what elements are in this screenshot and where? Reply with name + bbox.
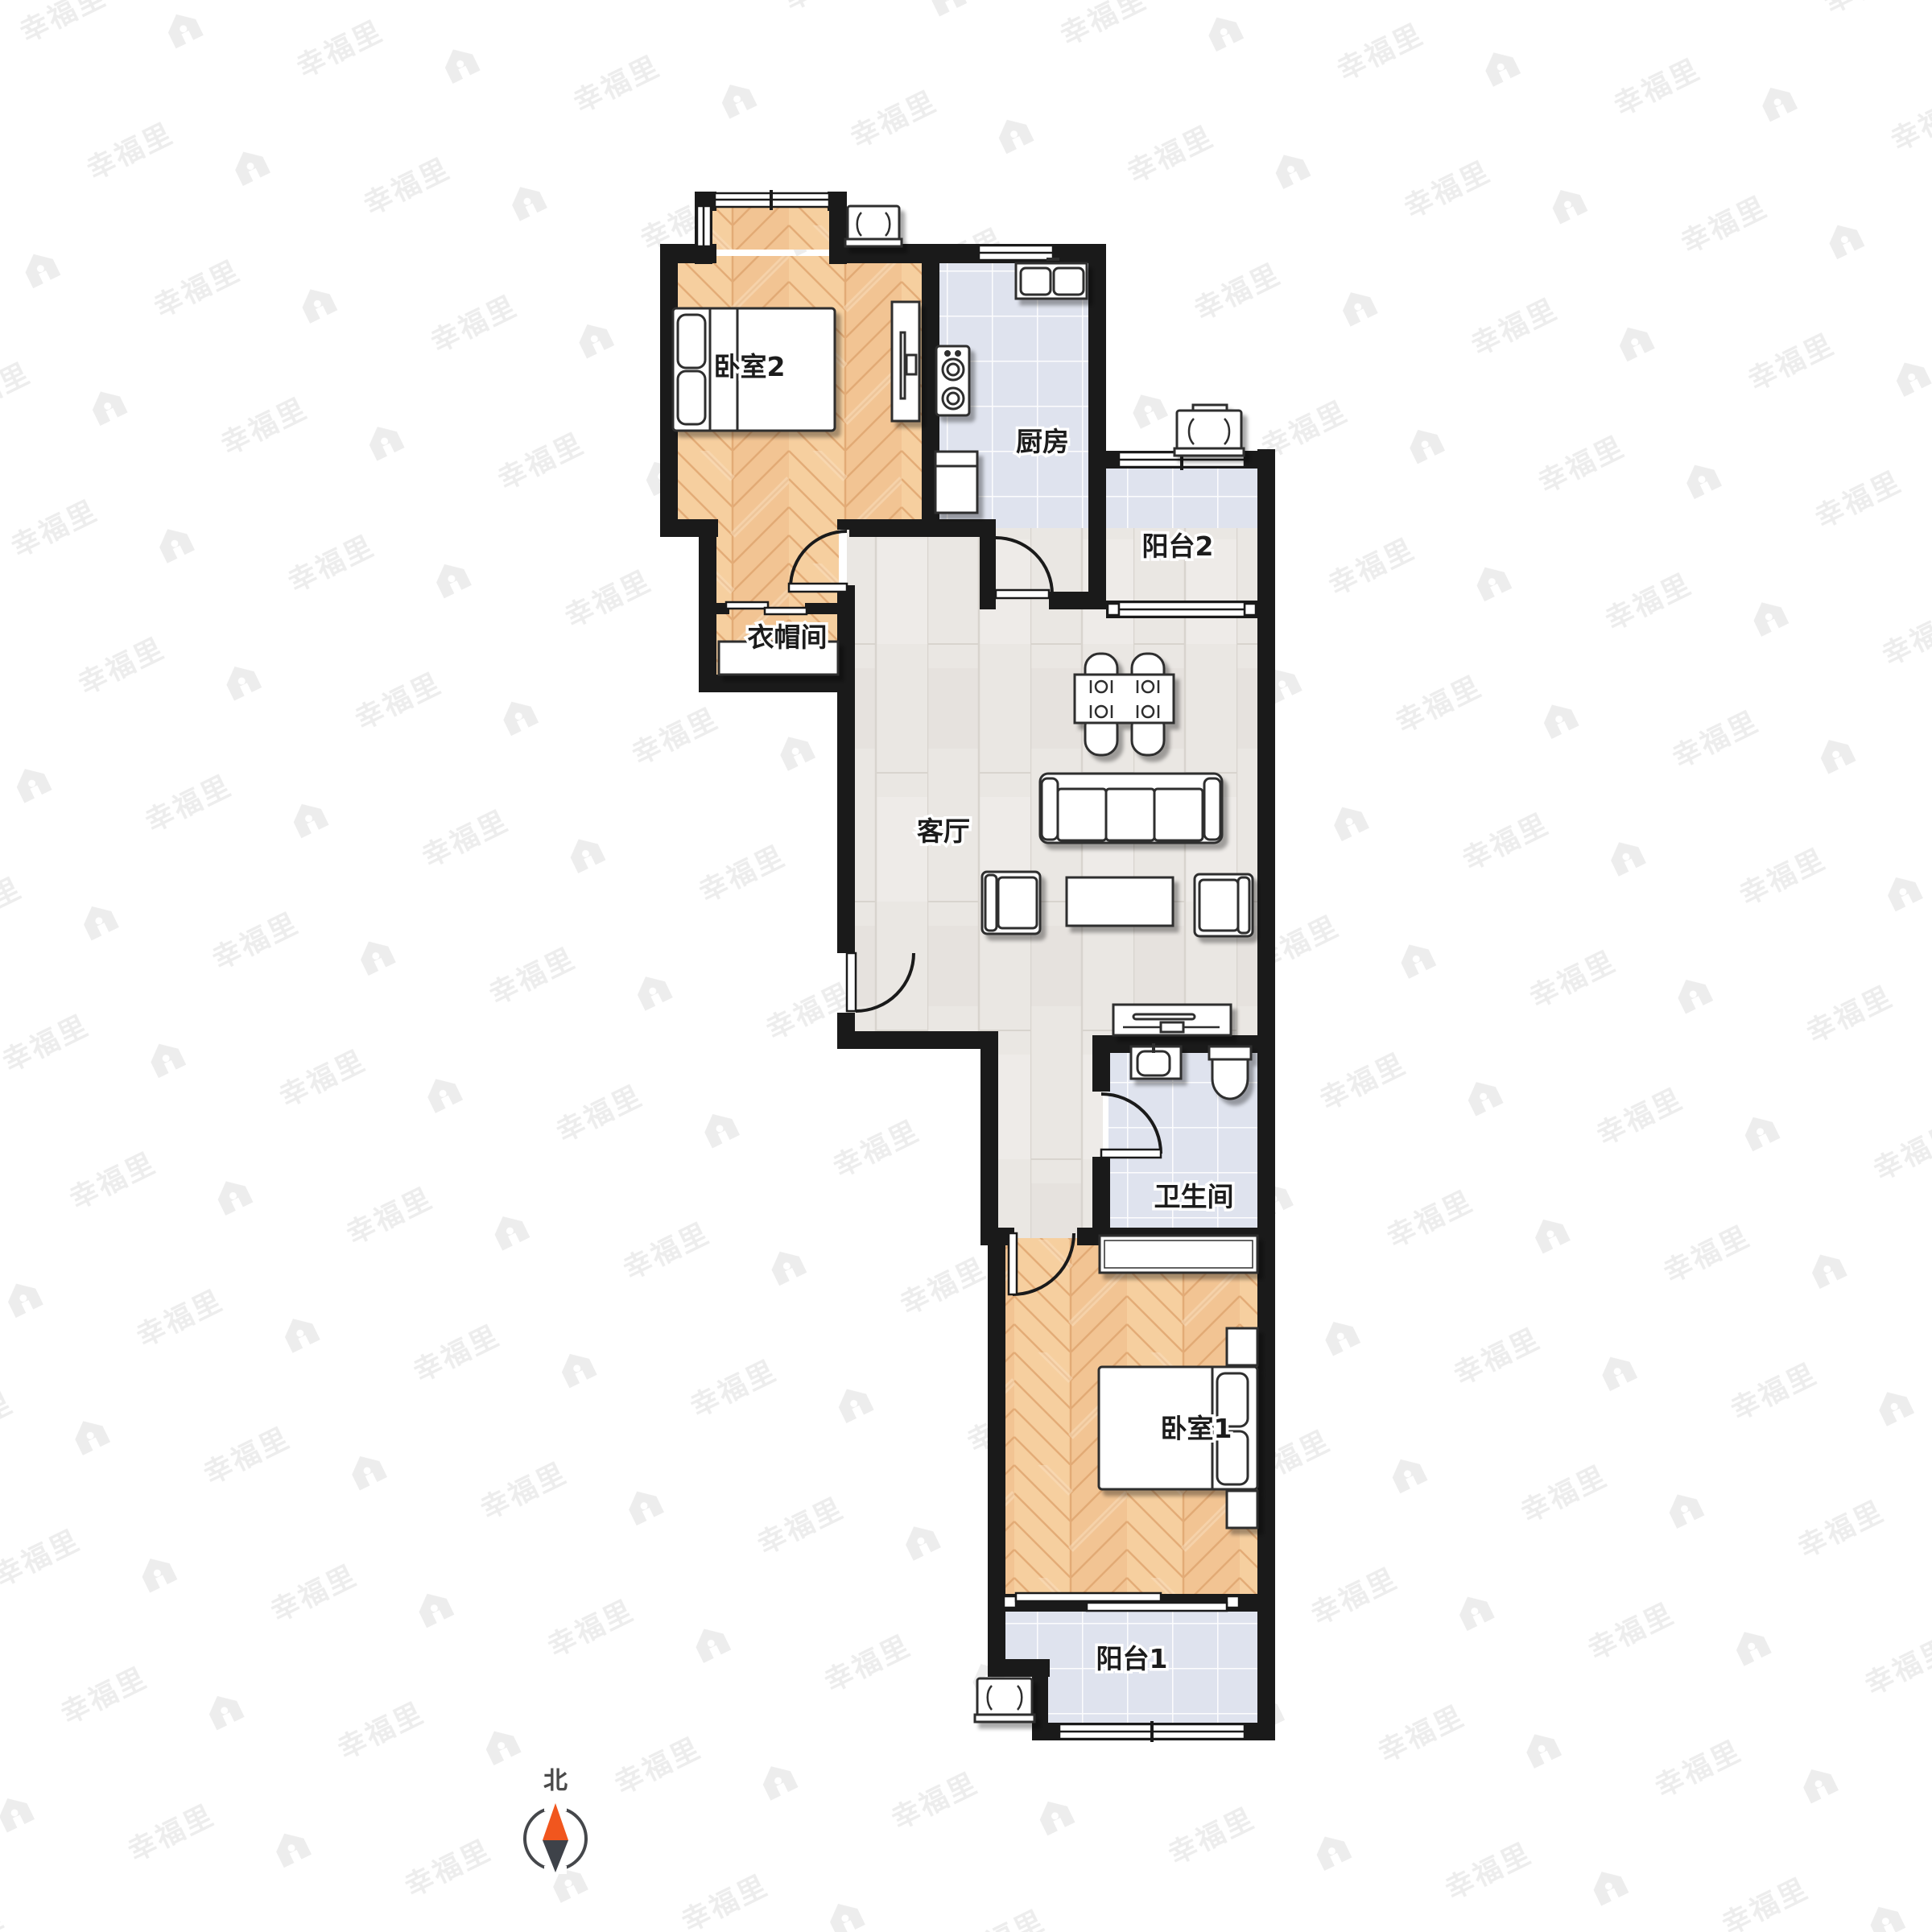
room-label-living-room: 客厅 <box>917 815 970 847</box>
room-label-cloakroom: 衣帽间 <box>748 621 828 653</box>
nightstand-icon <box>1227 1491 1257 1528</box>
room-label-bathroom: 卫生间 <box>1154 1181 1234 1212</box>
window-bedroom-2-side <box>697 206 711 246</box>
window-kitchen <box>979 246 1053 260</box>
room-label-balcony-2: 阳台2 <box>1142 530 1214 562</box>
floor-plan-page: 幸福里 <box>0 0 1932 1932</box>
wall-segment <box>837 1031 998 1049</box>
wall-segment <box>849 519 996 537</box>
room-label-balcony-1: 阳台1 <box>1096 1643 1168 1674</box>
window-balcony-2-living <box>1108 602 1256 617</box>
wardrobe-icon-bedroom-1 <box>1100 1236 1257 1273</box>
wall-segment <box>980 1031 998 1245</box>
nightstand-icon <box>1227 1328 1257 1365</box>
tv-cabinet-icon-bedroom-2 <box>892 302 919 421</box>
coffee-table-icon <box>1067 877 1173 926</box>
wall-segment <box>1257 449 1275 1740</box>
wall-segment <box>980 519 996 609</box>
room-label-kitchen: 厨房 <box>1016 426 1069 457</box>
tv-console-icon <box>1113 1005 1231 1035</box>
dining-table-icon <box>1075 675 1174 723</box>
toilet-icon <box>1209 1046 1251 1099</box>
bathroom-sink-icon <box>1131 1043 1181 1079</box>
wall-segment <box>1092 1035 1110 1092</box>
hallway-floor <box>990 1038 1103 1248</box>
floor-plan-svg: 幸福里 <box>0 0 1932 1932</box>
room-label-bedroom-1: 卧室1 <box>1161 1413 1232 1444</box>
stove-icon <box>936 346 969 415</box>
wall-segment <box>805 603 839 614</box>
compass-north-label: 北 <box>543 1767 568 1795</box>
room-label-bedroom-2: 卧室2 <box>714 351 786 382</box>
kitchen-sink-icon <box>1016 259 1087 299</box>
pillow-icon <box>678 371 705 424</box>
ac-unit-icon-bedroom-2 <box>845 206 902 246</box>
wall-segment <box>699 675 853 692</box>
ac-unit-icon-balcony-1 <box>975 1678 1034 1722</box>
pillow-icon <box>678 315 705 368</box>
armchair-icon-right <box>1195 874 1253 936</box>
wall-segment <box>699 519 716 692</box>
window-bedroom-2-bay <box>715 190 829 210</box>
wall-segment <box>837 519 855 530</box>
fridge-icon <box>935 452 977 513</box>
ac-unit-icon-balcony-2 <box>1174 405 1244 456</box>
wall-segment <box>1088 244 1106 609</box>
armchair-icon-left <box>982 872 1040 934</box>
window-balcony-1 <box>1059 1721 1245 1742</box>
wall-segment <box>837 585 855 953</box>
sofa-icon <box>1040 774 1222 843</box>
